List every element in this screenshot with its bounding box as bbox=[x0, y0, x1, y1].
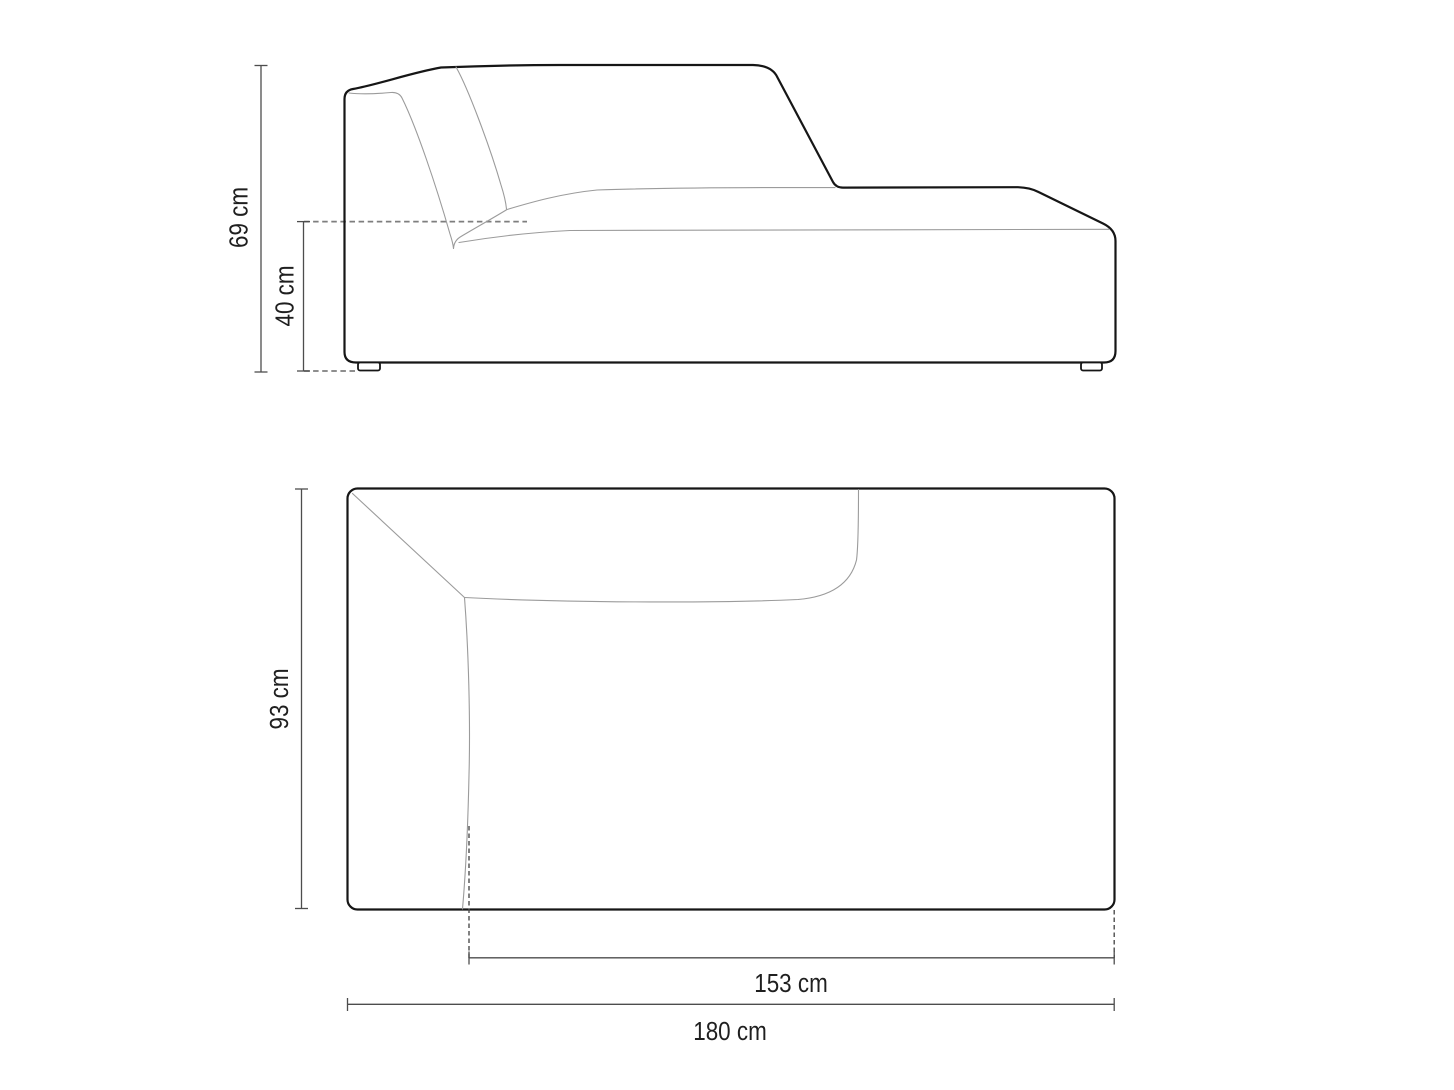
arm-inner-edge-line bbox=[463, 598, 470, 910]
width-dimension-label: 180 cm bbox=[693, 1018, 767, 1047]
drawing-svg: 69 cm 40 cm bbox=[0, 0, 1454, 1090]
top-view: 93 cm 153 cm 180 cm bbox=[266, 489, 1115, 1047]
backrest-front-seam-line bbox=[349, 92, 454, 248]
seat-height-dimension: 40 cm bbox=[271, 222, 310, 371]
seat-platform-front-line bbox=[459, 229, 1109, 242]
width-dimension: 180 cm bbox=[348, 998, 1115, 1046]
side-view-outline bbox=[345, 65, 1116, 363]
depth-dimension: 93 cm bbox=[266, 489, 308, 909]
side-view-right-foot bbox=[1081, 363, 1102, 371]
backrest-side-seam-line bbox=[456, 67, 507, 209]
chaise-length-dimension: 153 cm bbox=[469, 952, 1114, 999]
height-dimension-label: 69 cm bbox=[225, 187, 254, 248]
side-view: 69 cm 40 cm bbox=[225, 65, 1115, 372]
seat-height-dimension-label: 40 cm bbox=[271, 265, 300, 326]
dimension-drawing: 69 cm 40 cm bbox=[0, 0, 1454, 1090]
seat-cushion-top-line bbox=[454, 188, 836, 249]
depth-dimension-label: 93 cm bbox=[266, 668, 295, 729]
height-dimension: 69 cm bbox=[225, 66, 267, 373]
backrest-inner-edge-line bbox=[465, 490, 859, 602]
corner-diagonal-seam-line bbox=[353, 494, 465, 598]
side-view-left-foot bbox=[358, 363, 380, 371]
top-view-outline bbox=[348, 489, 1115, 910]
chaise-length-dimension-label: 153 cm bbox=[754, 970, 828, 999]
